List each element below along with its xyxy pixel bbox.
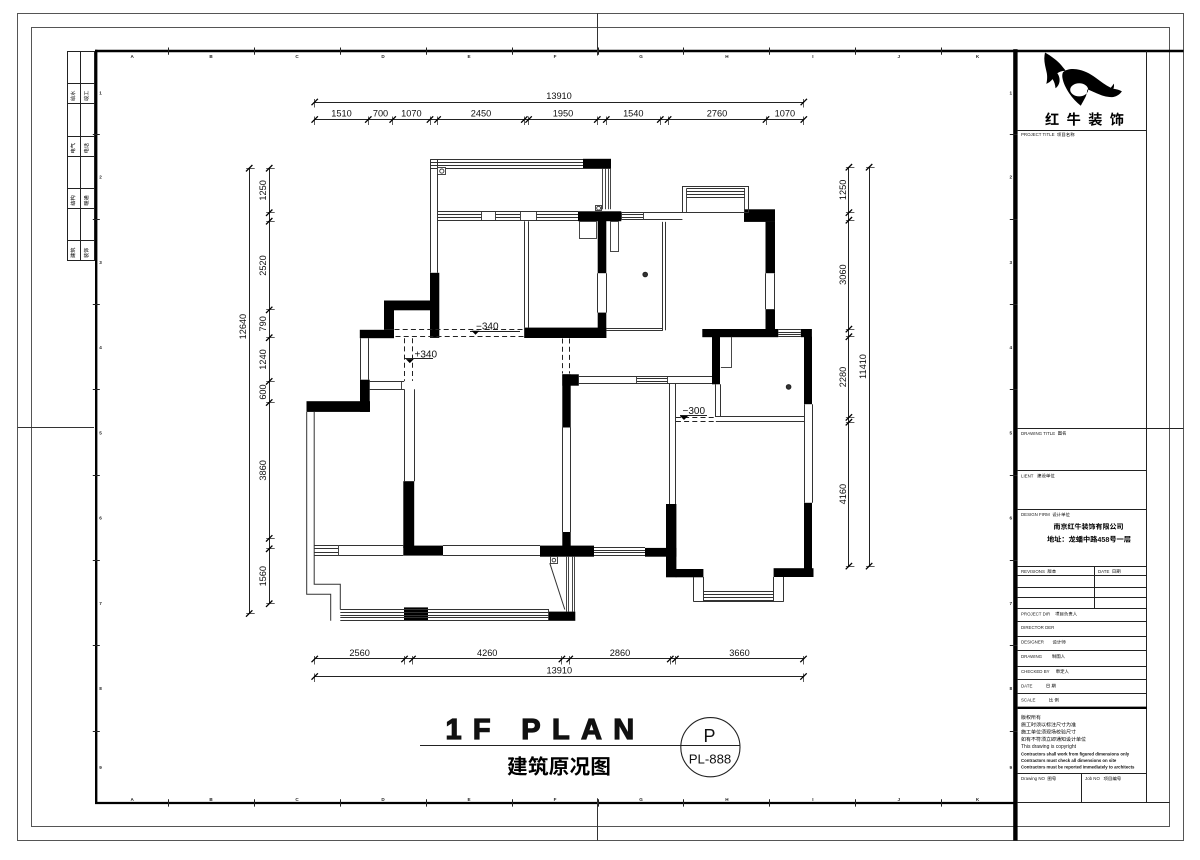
svg-text:8: 8: [99, 686, 102, 691]
svg-text:E: E: [467, 797, 470, 802]
svg-text:3060: 3060: [838, 264, 848, 284]
svg-text:1510: 1510: [331, 109, 351, 119]
svg-text:2450: 2450: [471, 109, 491, 119]
svg-text:Contractors must check all dim: Contractors must check all dimensions on…: [1021, 758, 1117, 763]
svg-text:9: 9: [1009, 765, 1012, 770]
svg-text:5: 5: [1009, 430, 1012, 435]
svg-text:CHECKED BY: CHECKED BY: [1021, 669, 1056, 674]
svg-text:DIRECTOR DER: DIRECTOR DER: [1021, 625, 1057, 630]
svg-text:Drawing NO: Drawing NO: [1021, 776, 1047, 781]
svg-text:F: F: [554, 797, 557, 802]
svg-text:PROJECT DIR: PROJECT DIR: [1021, 611, 1055, 616]
svg-text:2860: 2860: [610, 648, 630, 658]
svg-text:Contractors must be reported i: Contractors must be reported immediately…: [1021, 764, 1135, 769]
svg-text:7: 7: [99, 601, 102, 606]
svg-text:9: 9: [99, 765, 102, 770]
svg-text:1950: 1950: [553, 109, 573, 119]
svg-text:1070: 1070: [775, 109, 795, 119]
svg-text:DESIGNER: DESIGNER: [1021, 640, 1052, 645]
svg-text:790: 790: [258, 316, 268, 331]
svg-text:4160: 4160: [838, 484, 848, 504]
svg-text:1: 1: [99, 90, 102, 95]
svg-text:G: G: [639, 54, 643, 59]
svg-text:6: 6: [99, 516, 102, 521]
svg-text:4: 4: [1009, 345, 1012, 350]
svg-text:F: F: [554, 54, 557, 59]
svg-text:2280: 2280: [838, 367, 848, 387]
svg-text:1250: 1250: [838, 180, 848, 200]
svg-text:1250: 1250: [258, 180, 268, 200]
svg-text:4: 4: [99, 345, 102, 350]
svg-text:458: 458: [1097, 535, 1109, 544]
svg-text:DATE: DATE: [1098, 569, 1112, 574]
svg-text:This drawing is copyright: This drawing is copyright: [1021, 744, 1077, 750]
svg-text:−340: −340: [476, 321, 499, 332]
svg-text:8: 8: [1009, 686, 1012, 691]
svg-text:2: 2: [99, 175, 102, 180]
svg-text:1F PLAN: 1F PLAN: [446, 714, 646, 746]
svg-text:7: 7: [1009, 601, 1012, 606]
svg-text:DATE: DATE: [1021, 683, 1046, 688]
svg-text:2760: 2760: [707, 109, 727, 119]
svg-text:PROJECT TITLE: PROJECT TITLE: [1021, 132, 1057, 137]
svg-text:Job NO: Job NO: [1085, 776, 1104, 781]
svg-text:2560: 2560: [349, 648, 369, 658]
svg-text:P: P: [703, 726, 715, 746]
svg-text:4260: 4260: [477, 648, 497, 658]
svg-text:DRAWING TITLE: DRAWING TITLE: [1021, 431, 1058, 436]
svg-text:2: 2: [1009, 175, 1012, 180]
svg-text:13910: 13910: [546, 91, 572, 101]
svg-text:11410: 11410: [858, 354, 868, 379]
svg-text:J: J: [898, 54, 901, 59]
svg-text:6: 6: [1009, 516, 1012, 521]
svg-text:2520: 2520: [258, 255, 268, 275]
svg-text:5: 5: [99, 430, 102, 435]
svg-text:REVISIONS: REVISIONS: [1021, 569, 1047, 574]
svg-text:J: J: [898, 797, 901, 802]
svg-text:1540: 1540: [623, 109, 643, 119]
svg-text:3: 3: [1009, 260, 1012, 265]
svg-text:DESIGN FIRM: DESIGN FIRM: [1021, 512, 1052, 517]
svg-text:DRAWING: DRAWING: [1021, 654, 1052, 659]
svg-text:3860: 3860: [258, 460, 268, 480]
svg-text:LIENT: LIENT: [1021, 473, 1037, 478]
svg-text:1560: 1560: [258, 566, 268, 586]
svg-text:600: 600: [258, 384, 268, 399]
svg-text:PL-888: PL-888: [689, 752, 732, 767]
svg-text:G: G: [639, 797, 643, 802]
svg-text:1: 1: [1009, 90, 1012, 95]
svg-text:SCALE: SCALE: [1021, 698, 1049, 703]
svg-text:700: 700: [373, 109, 388, 119]
svg-text:13910: 13910: [547, 666, 573, 676]
svg-text:E: E: [467, 54, 470, 59]
svg-text:Contractors shall work from fi: Contractors shall work from figured dime…: [1021, 752, 1130, 757]
svg-text:I: I: [812, 797, 813, 802]
svg-text:3: 3: [99, 260, 102, 265]
svg-text:I: I: [812, 54, 813, 59]
svg-text:1070: 1070: [401, 109, 421, 119]
svg-text:3660: 3660: [729, 648, 749, 658]
svg-text:1240: 1240: [258, 349, 268, 369]
svg-text:12640: 12640: [238, 314, 248, 340]
